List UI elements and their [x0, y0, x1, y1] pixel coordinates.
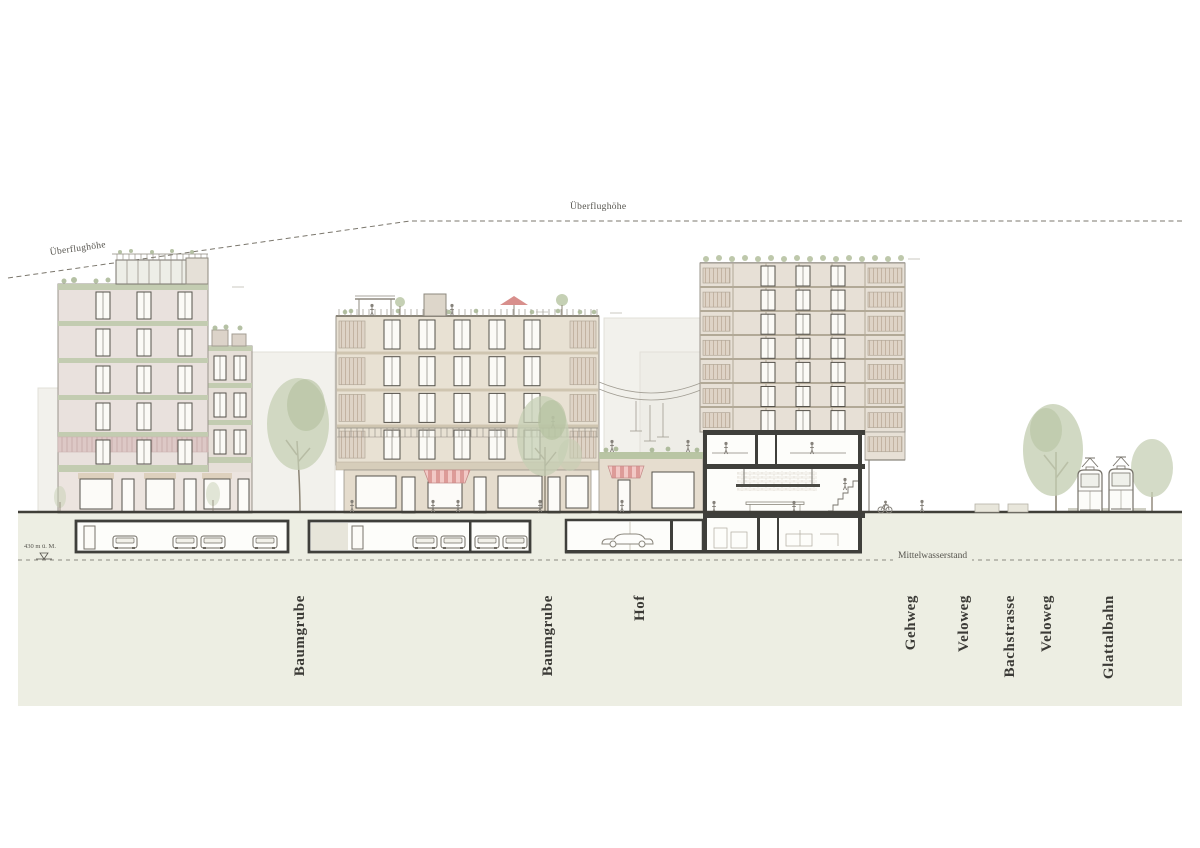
tram-1 [1078, 458, 1102, 513]
tram-2 [1109, 457, 1133, 512]
building-left [58, 249, 252, 513]
zone-label-gehweg: Gehweg [902, 595, 921, 650]
zone-label-baumgrube-2: Baumgrube [539, 595, 558, 676]
underground-garage-2 [309, 521, 530, 552]
building-right [700, 255, 905, 553]
underground-garage-1 [76, 521, 288, 552]
zone-label-hof: Hof [631, 595, 650, 621]
underground-garage-hof [566, 520, 703, 552]
elevation-mark-label: 430 m ü. M. [24, 543, 56, 550]
zone-label-veloweg-1: Veloweg [955, 595, 974, 652]
zone-label-glattalbahn: Glattalbahn [1100, 595, 1119, 679]
awning-red [608, 466, 644, 478]
flight-height-label-top: Überflughöhe [570, 202, 626, 212]
zone-label-baumgrube-1: Baumgrube [291, 595, 310, 676]
zone-label-bachstrasse: Bachstrasse [1001, 595, 1020, 677]
roof-shrubs [703, 255, 904, 262]
roof-stair-box [424, 294, 446, 316]
section-drawing [0, 0, 1200, 848]
water-level-label: Mittelwasserstand [893, 551, 972, 561]
right-windows [761, 266, 845, 431]
awning-red [424, 470, 470, 483]
zone-label-veloweg-2: Veloweg [1038, 595, 1057, 652]
right-left-balconies [703, 268, 730, 428]
architectural-section-elevation: Überflughöhe Überflughöhe Mittelwasserst… [0, 0, 1200, 848]
roof-umbrella [500, 296, 528, 305]
